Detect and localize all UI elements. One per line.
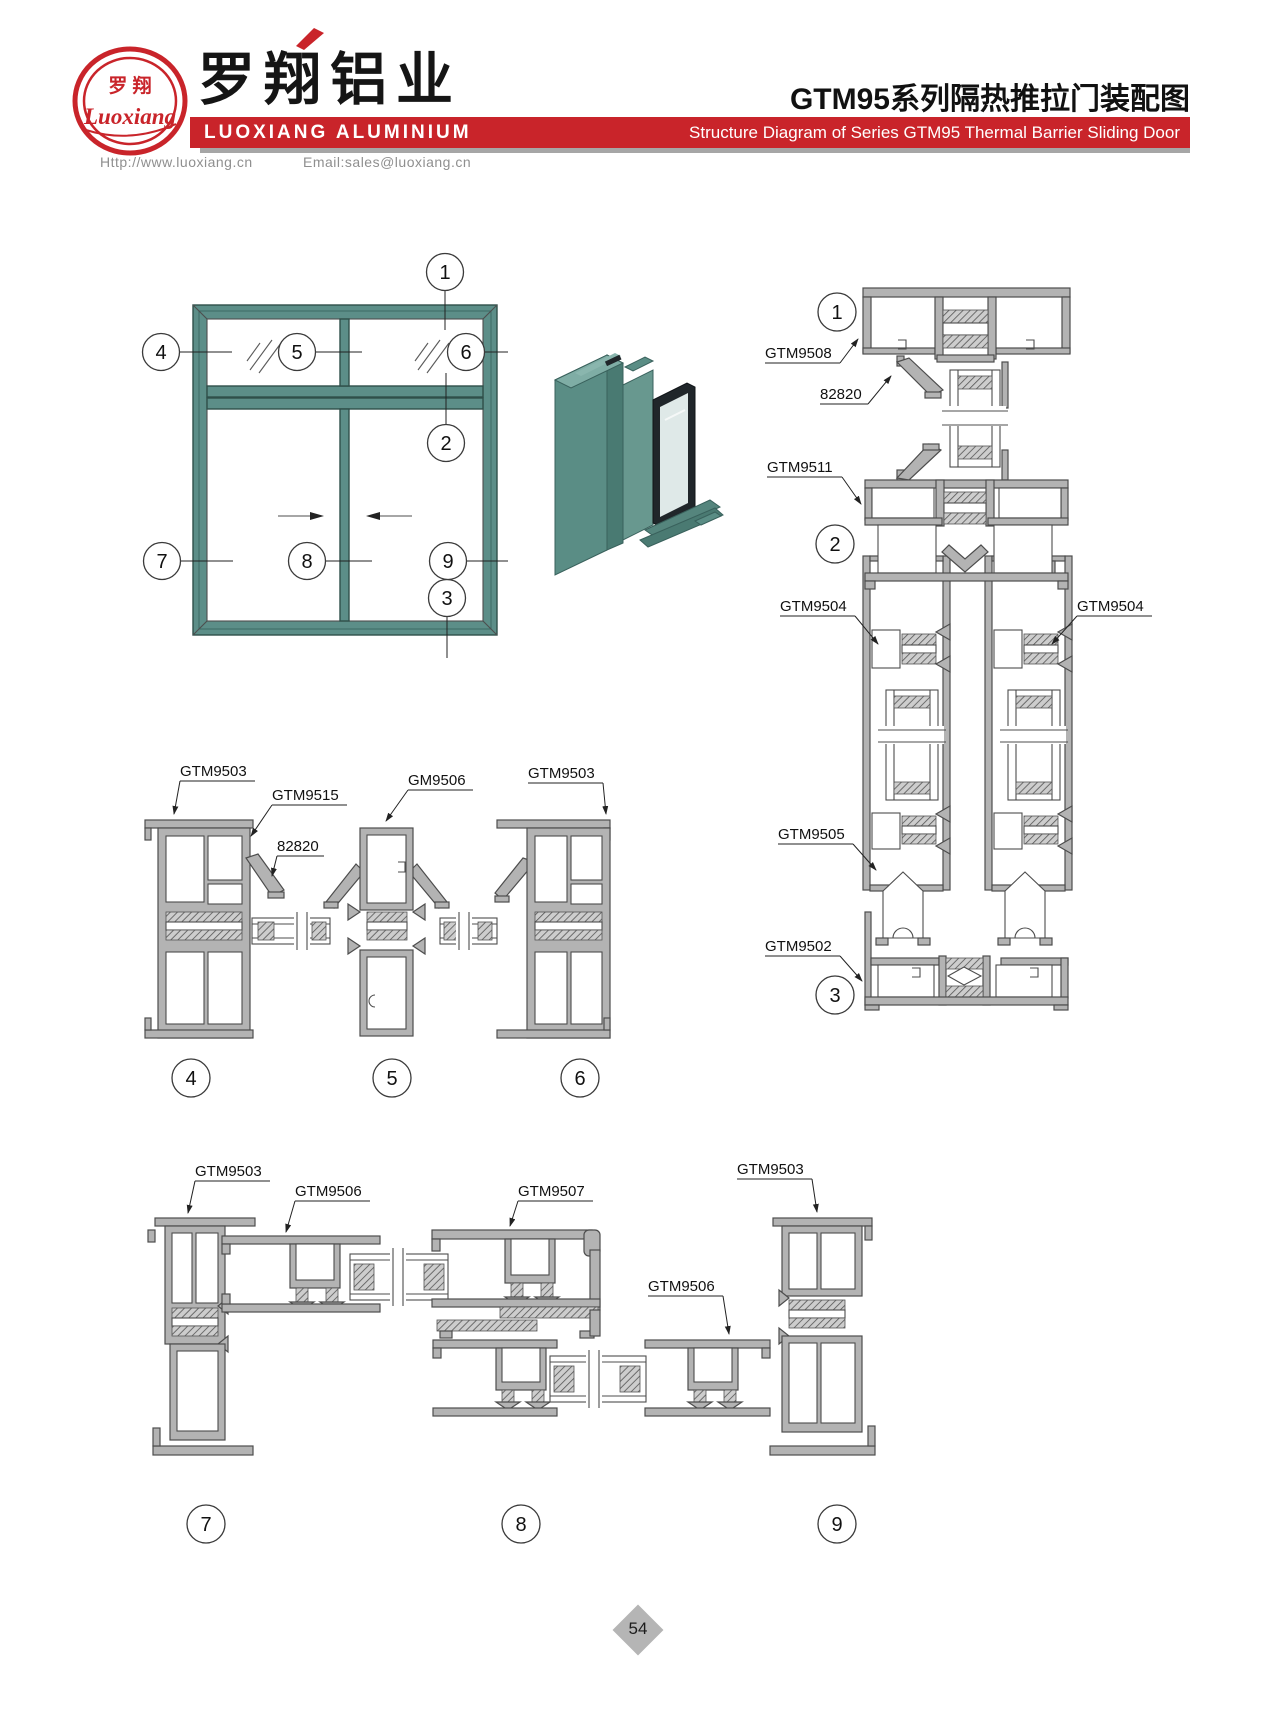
label-gtm9503-left: GTM9503 bbox=[180, 763, 247, 780]
cut-callout-6: 6 bbox=[574, 1068, 585, 1090]
label-gtm9504-right: GTM9504 bbox=[1077, 598, 1144, 615]
section-cut-5-stile bbox=[324, 828, 449, 1036]
horizontal-sections-bottom-diagram: GTM9503 GTM9506 GTM9507 GTM9503 GTM9506 … bbox=[140, 1160, 900, 1560]
horizontal-sections-top-diagram: GTM9503 GTM9515 82820 GM9506 GTM9503 4 5… bbox=[140, 745, 620, 1105]
page-title-cn: GTM95系列隔热推拉门装配图 bbox=[790, 74, 1190, 118]
website-link[interactable]: Http://www.luoxiang.cn bbox=[100, 154, 253, 170]
banner-shadow bbox=[200, 148, 1190, 153]
callout-3: 3 bbox=[441, 588, 452, 610]
bottom-section-callouts: 7 8 9 bbox=[187, 1505, 856, 1543]
section-cut-7-jamb bbox=[148, 1218, 255, 1455]
label-gtm9515: GTM9515 bbox=[272, 787, 339, 804]
header-red-banner: LUOXIANG ALUMINIUM Structure Diagram of … bbox=[190, 117, 1190, 148]
label-gtm9503-br: GTM9503 bbox=[737, 1161, 804, 1178]
brand-red-accent-icon bbox=[294, 28, 324, 50]
section-cut-head-gtm9508 bbox=[863, 288, 1070, 362]
cut-callout-7: 7 bbox=[200, 1514, 211, 1536]
label-gtm9505: GTM9505 bbox=[778, 826, 845, 843]
callout-5: 5 bbox=[291, 342, 302, 364]
label-gtm9506-bl: GTM9506 bbox=[295, 1183, 362, 1200]
label-82820-mid: 82820 bbox=[277, 838, 319, 855]
cut-callout-9: 9 bbox=[831, 1514, 842, 1536]
page-number: 54 bbox=[610, 1619, 666, 1639]
page-title-en: Structure Diagram of Series GTM95 Therma… bbox=[689, 123, 1180, 143]
brand-name-cn: 罗翔铝业 bbox=[198, 34, 462, 116]
vertical-section-diagram: GTM9508 82820 GTM9511 GTM9504 GTM9504 GT… bbox=[690, 240, 1160, 1030]
label-gtm9508: GTM9508 bbox=[765, 345, 832, 362]
callout-1: 1 bbox=[439, 262, 450, 284]
contact-line: Http://www.luoxiang.cn Email:sales@luoxi… bbox=[100, 154, 517, 170]
callout-6: 6 bbox=[460, 342, 471, 364]
label-gtm9503-right: GTM9503 bbox=[528, 765, 595, 782]
label-gtm9507: GTM9507 bbox=[518, 1183, 585, 1200]
email-link[interactable]: Email:sales@luoxiang.cn bbox=[303, 154, 471, 170]
callout-4: 4 bbox=[155, 342, 166, 364]
callout-2: 2 bbox=[440, 433, 451, 455]
logo-script-text: Luoxiang bbox=[83, 104, 176, 129]
page-number-diamond: 54 bbox=[610, 1602, 666, 1658]
door-elevation-diagram: 1 2 3 4 5 6 7 8 9 bbox=[130, 230, 520, 670]
meeting-stile-sections bbox=[863, 556, 1072, 945]
label-gtm9506-br: GTM9506 bbox=[648, 1278, 715, 1295]
section-cut-8-panels bbox=[222, 1230, 770, 1416]
label-gm9506: GM9506 bbox=[408, 772, 466, 789]
callout-9: 9 bbox=[442, 551, 453, 573]
label-gtm9502: GTM9502 bbox=[765, 938, 832, 955]
cut-callout-1: 1 bbox=[831, 302, 842, 324]
brand-name-en: LUOXIANG ALUMINIUM bbox=[204, 122, 472, 144]
label-gtm9503-bl: GTM9503 bbox=[195, 1163, 262, 1180]
part-82820 bbox=[897, 356, 943, 398]
catalog-page: 罗 翔 Luoxiang 罗翔铝业 GTM95系列隔热推拉门装配图 LUOXIA… bbox=[0, 0, 1277, 1721]
cut-callout-8: 8 bbox=[515, 1514, 526, 1536]
cut-callout-5: 5 bbox=[386, 1068, 397, 1090]
label-82820: 82820 bbox=[820, 386, 862, 403]
callout-7: 7 bbox=[156, 551, 167, 573]
section-cut-9-jamb bbox=[770, 1218, 875, 1455]
label-gtm9504-left: GTM9504 bbox=[780, 598, 847, 615]
label-gtm9511: GTM9511 bbox=[767, 459, 833, 476]
middle-section-callouts: 4 5 6 bbox=[172, 1059, 599, 1097]
cut-callout-4: 4 bbox=[185, 1068, 196, 1090]
callout-8: 8 bbox=[301, 551, 312, 573]
logo-cn-text: 罗 翔 bbox=[108, 74, 151, 97]
company-logo: 罗 翔 Luoxiang bbox=[68, 42, 194, 162]
cut-callout-3: 3 bbox=[829, 985, 840, 1007]
glass-unit-vertical bbox=[942, 362, 1008, 480]
cut-callout-2: 2 bbox=[829, 534, 840, 556]
section-cut-6-jamb bbox=[495, 820, 610, 1038]
